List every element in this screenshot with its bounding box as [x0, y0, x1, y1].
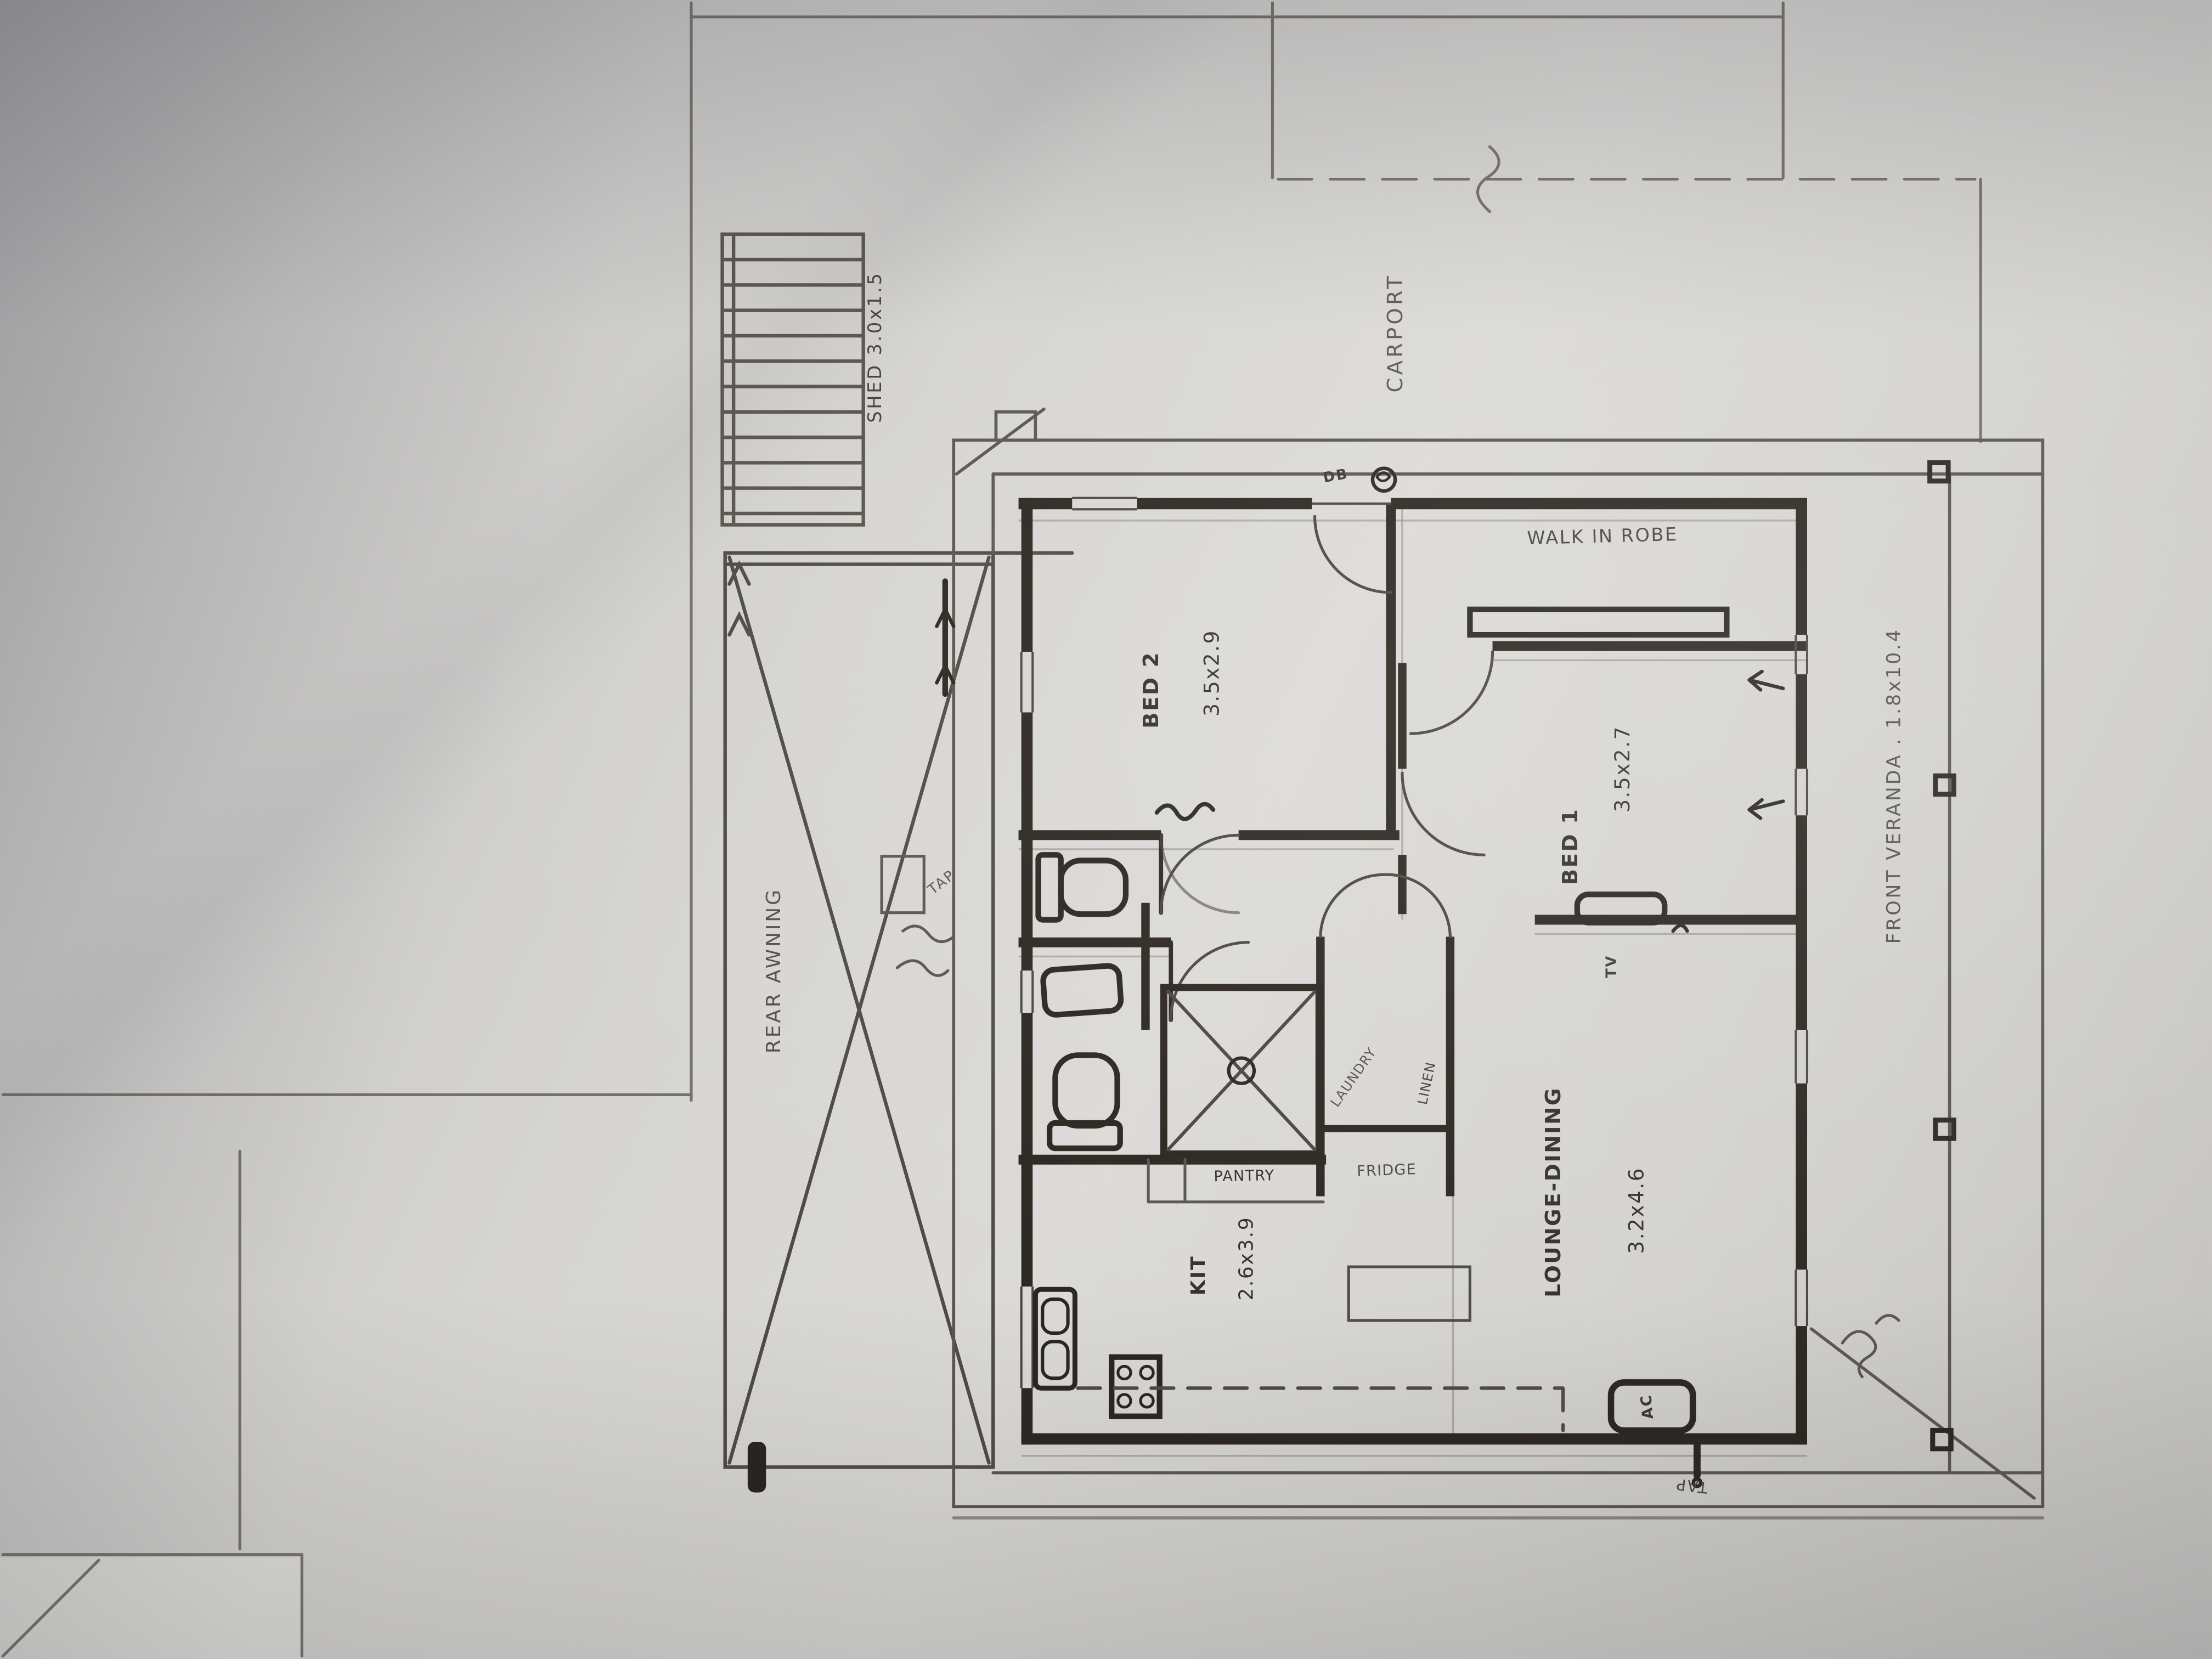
tv-annotation-text: TV	[1605, 955, 1620, 978]
pantry-label-text: PANTRY	[1214, 1167, 1274, 1186]
kitchen-label: KIT	[1188, 1255, 1210, 1296]
window-tick	[1157, 804, 1214, 819]
linen-door-arc	[1384, 874, 1451, 936]
shed-label: SHED 3.0x1.5	[866, 271, 887, 422]
bed2-label: BED 2	[1138, 651, 1164, 729]
kitchen-sink	[1035, 1289, 1075, 1388]
carport-label: CARPORT	[1383, 273, 1408, 392]
pantry-label: PANTRY	[1214, 1167, 1274, 1186]
window-right-2	[1796, 769, 1807, 815]
walk-in-robe-label: WALK IN ROBE	[1527, 525, 1678, 550]
window-kitchen-sink	[1022, 1286, 1033, 1388]
toilet-2	[1049, 1055, 1120, 1148]
fridge-label: FRIDGE	[1357, 1161, 1417, 1181]
floor-plan-photo: SHED 3.0x1.5 CARPORT REAR AWNING FRONT V…	[0, 0, 2212, 1659]
bed1-label-text: BED 1	[1558, 808, 1583, 885]
basin	[1042, 965, 1121, 1015]
lounge-dining-label-text: LOUNGE-DINING	[1541, 1087, 1566, 1297]
tap-bottom-text: TAP	[1674, 1474, 1709, 1496]
electric-meter-icon	[1373, 469, 1395, 491]
kitchen-dims: 2.6x3.9	[1236, 1216, 1259, 1301]
shed-label-text: SHED 3.0x1.5	[866, 271, 887, 422]
bed2-dims-text: 3.5x2.9	[1202, 629, 1224, 716]
kitchen-label-text: KIT	[1188, 1255, 1210, 1296]
ac-annotation: AC	[1638, 1393, 1657, 1419]
window-right-1	[1796, 635, 1807, 674]
rear-awning-label: REAR AWNING	[763, 888, 786, 1053]
bed1-dims-text: 3.5x2.7	[1612, 725, 1635, 812]
window-left-2	[1022, 970, 1033, 1013]
walk-in-robe-label-text: WALK IN ROBE	[1527, 525, 1678, 550]
bed1-label: BED 1	[1558, 808, 1583, 885]
kitchen-dims-text: 2.6x3.9	[1236, 1216, 1259, 1301]
veranda-post	[1930, 462, 1948, 481]
bed1-dims: 3.5x2.7	[1612, 725, 1635, 812]
window-right-3	[1796, 1030, 1807, 1084]
rear-door-marker	[936, 581, 953, 694]
bed2-label-text: BED 2	[1138, 651, 1164, 729]
linen-door-arc	[1321, 874, 1384, 936]
tv-annotation: TV	[1605, 955, 1620, 978]
window-arrows	[1750, 672, 1784, 818]
wir-door-arc	[1410, 652, 1492, 733]
veranda-outline	[953, 409, 2042, 1518]
bed2-dims: 3.5x2.9	[1202, 629, 1224, 716]
window-right-4	[1796, 1269, 1807, 1326]
wardrobe-rail	[1470, 610, 1726, 635]
bed1-door-arc	[1402, 773, 1484, 855]
front-veranda-label-text: FRONT VERANDA . 1.8x10.4	[1883, 628, 1906, 944]
lounge-dining-dims: 3.2x4.6	[1627, 1167, 1649, 1254]
shed-outline	[723, 234, 864, 525]
fixtures	[748, 469, 1783, 1493]
carport-label-text: CARPORT	[1383, 273, 1408, 392]
shower	[1164, 988, 1319, 1154]
toilet-1	[1039, 855, 1126, 919]
entry-door-arc	[1315, 516, 1391, 592]
fridge-label-text: FRIDGE	[1357, 1161, 1417, 1181]
house-walls	[1019, 498, 1807, 1444]
window-bed2-top	[1072, 498, 1137, 510]
tap-bottom-annotation: TAP	[1674, 1474, 1709, 1496]
door-arcs	[1161, 513, 1492, 1020]
plan-linework	[0, 0, 2212, 1659]
rear-awning-label-text: REAR AWNING	[763, 888, 786, 1053]
lounge-dining-dims-text: 3.2x4.6	[1627, 1167, 1649, 1254]
front-veranda-label: FRONT VERANDA . 1.8x10.4	[1883, 628, 1906, 944]
window-left-1	[1022, 652, 1033, 713]
ac-annotation-text: AC	[1638, 1393, 1657, 1419]
lounge-dining-label: LOUNGE-DINING	[1541, 1087, 1566, 1297]
downpipe-blob	[748, 1442, 766, 1493]
